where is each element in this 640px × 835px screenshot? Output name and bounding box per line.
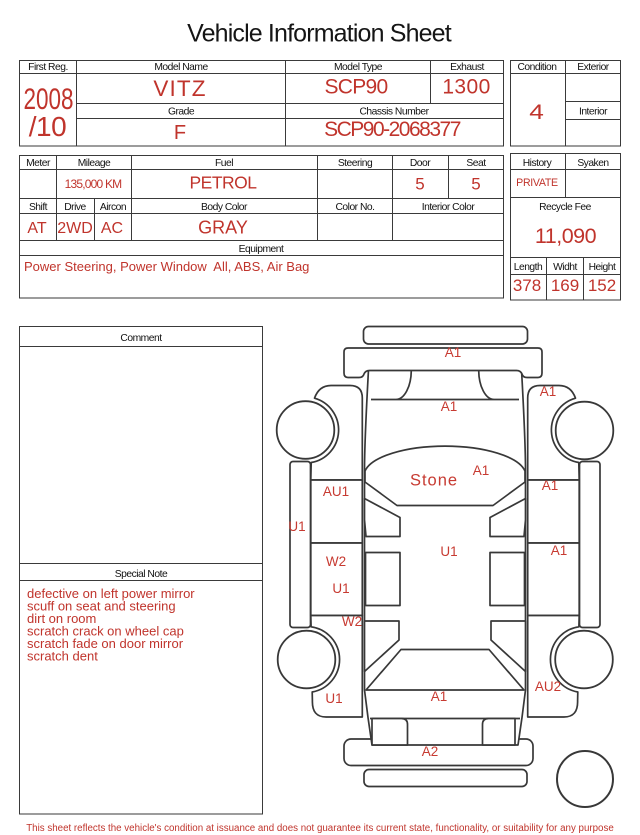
svg-text:A2: A2 xyxy=(422,744,439,759)
svg-text:4: 4 xyxy=(529,100,544,124)
svg-text:Interior: Interior xyxy=(579,107,608,118)
svg-text:Chassis Number: Chassis Number xyxy=(359,107,429,118)
svg-text:W2: W2 xyxy=(326,554,346,569)
svg-text:A1: A1 xyxy=(445,345,462,360)
svg-text:U1: U1 xyxy=(332,581,349,596)
svg-text:AU2: AU2 xyxy=(535,679,561,694)
svg-text:This sheet reflects the vehicl: This sheet reflects the vehicle's condit… xyxy=(26,823,614,834)
svg-text:A1: A1 xyxy=(431,689,448,704)
svg-text:Color No.: Color No. xyxy=(336,202,375,213)
svg-text:Interior Color: Interior Color xyxy=(422,202,476,213)
svg-text:135,000 KM: 135,000 KM xyxy=(65,177,123,191)
svg-text:Drive: Drive xyxy=(64,202,86,213)
svg-text:AT: AT xyxy=(27,220,46,237)
svg-text:1300: 1300 xyxy=(442,76,490,99)
svg-text:Exterior: Exterior xyxy=(577,62,610,73)
svg-text:Aircon: Aircon xyxy=(100,202,127,213)
svg-text:Grade: Grade xyxy=(168,107,195,118)
svg-text:Vehicle Information Sheet: Vehicle Information Sheet xyxy=(187,20,452,48)
svg-text:378: 378 xyxy=(513,276,541,295)
svg-text:Syaken: Syaken xyxy=(577,158,609,169)
svg-text:5: 5 xyxy=(415,175,424,194)
svg-text:Model Type: Model Type xyxy=(334,62,383,73)
svg-text:152: 152 xyxy=(588,276,616,295)
svg-text:A1: A1 xyxy=(542,478,559,493)
svg-text:A1: A1 xyxy=(473,463,490,478)
svg-text:Widht: Widht xyxy=(553,262,577,273)
svg-text:Comment: Comment xyxy=(120,333,162,344)
svg-text:SCP90-2068377: SCP90-2068377 xyxy=(324,118,461,141)
svg-text:AU1: AU1 xyxy=(323,484,349,499)
svg-text:Body Color: Body Color xyxy=(201,202,248,213)
svg-text:Mileage: Mileage xyxy=(78,158,111,169)
svg-text:Exhaust: Exhaust xyxy=(450,62,484,73)
svg-text:GRAY: GRAY xyxy=(198,218,248,238)
svg-text:U1: U1 xyxy=(440,544,457,559)
svg-text:Seat: Seat xyxy=(466,158,486,169)
svg-text:Steering: Steering xyxy=(338,158,373,169)
svg-text:Power Steering, Power Window: Power Steering, Power Window All, ABS, A… xyxy=(24,259,309,274)
svg-text:Condition: Condition xyxy=(517,62,557,73)
svg-text:SCP90: SCP90 xyxy=(324,76,387,99)
svg-text:Height: Height xyxy=(589,262,616,273)
svg-text:A1: A1 xyxy=(551,543,568,558)
svg-text:U1: U1 xyxy=(325,691,342,706)
svg-text:Recycle Fee: Recycle Fee xyxy=(539,202,591,213)
svg-text:W2: W2 xyxy=(342,614,362,629)
svg-text:Model Name: Model Name xyxy=(154,62,208,73)
svg-text:Equipment: Equipment xyxy=(239,244,284,255)
svg-text:U1: U1 xyxy=(288,519,305,534)
svg-text:History: History xyxy=(523,158,553,169)
svg-text:PETROL: PETROL xyxy=(189,173,257,193)
svg-text:PRIVATE: PRIVATE xyxy=(516,177,558,189)
svg-text:Door: Door xyxy=(410,158,431,169)
svg-text:scratch dent: scratch dent xyxy=(27,649,98,664)
svg-text:Length: Length xyxy=(514,262,543,273)
svg-text:169: 169 xyxy=(551,276,579,295)
svg-text:2WD: 2WD xyxy=(57,220,93,237)
svg-text:A1: A1 xyxy=(540,384,557,399)
svg-text:11,090: 11,090 xyxy=(535,224,597,248)
svg-text:Shift: Shift xyxy=(29,202,48,213)
svg-text:5: 5 xyxy=(471,175,480,194)
svg-text:AC: AC xyxy=(101,220,123,237)
svg-text:/10: /10 xyxy=(29,111,66,142)
svg-text:F: F xyxy=(174,122,186,144)
svg-text:Special Note: Special Note xyxy=(115,569,168,580)
svg-text:Fuel: Fuel xyxy=(215,158,233,169)
svg-text:Stone: Stone xyxy=(410,472,458,490)
svg-text:Meter: Meter xyxy=(26,158,51,169)
svg-text:First Reg.: First Reg. xyxy=(28,62,68,73)
svg-text:VITZ: VITZ xyxy=(153,76,206,101)
svg-text:A1: A1 xyxy=(441,399,458,414)
